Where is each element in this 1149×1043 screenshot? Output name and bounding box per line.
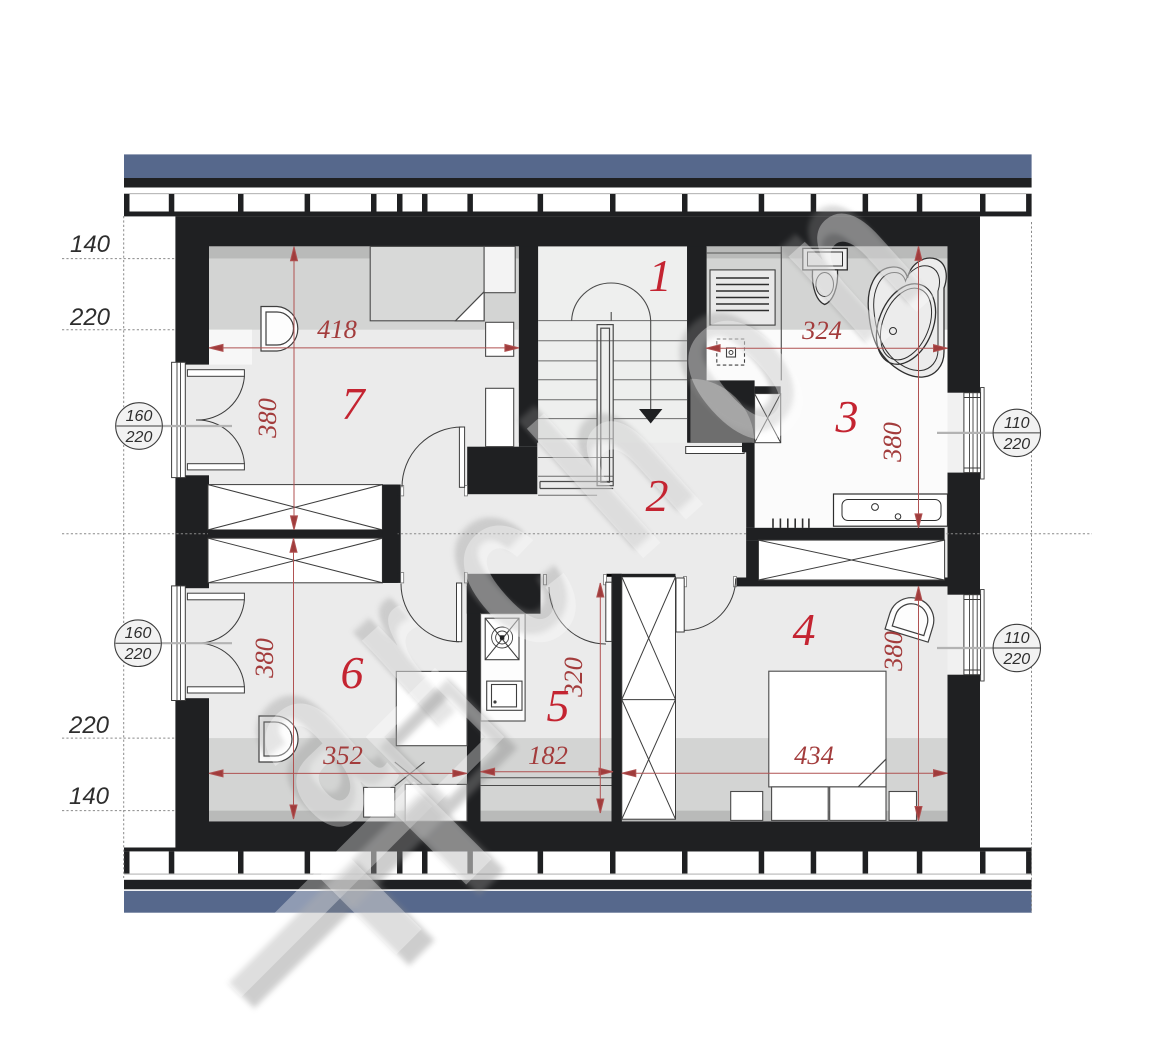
svg-text:110: 110	[1004, 415, 1030, 432]
svg-text:7: 7	[342, 378, 367, 429]
svg-text:220: 220	[68, 712, 110, 739]
svg-text:380: 380	[249, 638, 279, 679]
svg-text:220: 220	[124, 646, 152, 663]
svg-text:352: 352	[322, 740, 363, 770]
svg-text:380: 380	[877, 422, 907, 463]
svg-text:3: 3	[835, 391, 859, 442]
svg-text:5: 5	[547, 680, 570, 731]
svg-text:434: 434	[794, 740, 834, 770]
svg-text:2: 2	[646, 470, 669, 521]
svg-text:140: 140	[70, 231, 111, 258]
svg-text:160: 160	[125, 625, 152, 642]
svg-text:182: 182	[528, 740, 568, 770]
svg-text:1: 1	[649, 250, 672, 301]
svg-text:380: 380	[252, 398, 282, 439]
svg-text:220: 220	[1002, 651, 1030, 668]
svg-text:160: 160	[126, 408, 153, 425]
svg-text:220: 220	[69, 304, 111, 331]
svg-text:220: 220	[1002, 436, 1030, 453]
svg-text:324: 324	[801, 315, 842, 345]
svg-text:380: 380	[878, 631, 908, 672]
svg-text:6: 6	[341, 647, 364, 698]
svg-text:140: 140	[69, 783, 110, 810]
svg-text:110: 110	[1004, 630, 1030, 647]
svg-text:220: 220	[125, 429, 153, 446]
svg-text:418: 418	[317, 314, 357, 344]
svg-text:4: 4	[793, 604, 816, 655]
